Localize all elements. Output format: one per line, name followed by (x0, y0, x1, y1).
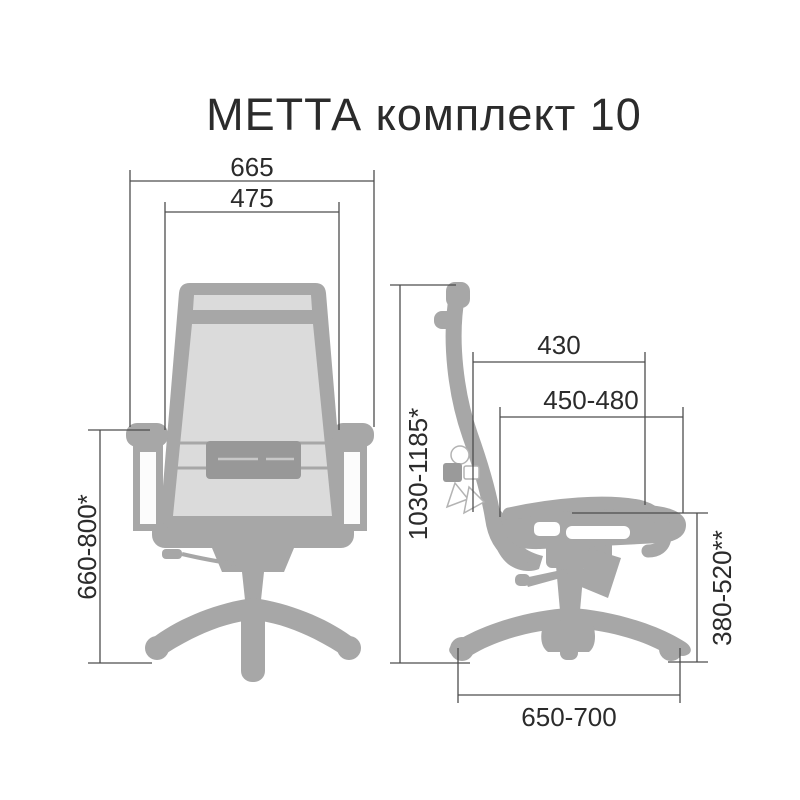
armrest-post-cutout (344, 452, 360, 524)
knob-ring (451, 446, 469, 464)
hanger-hook (434, 311, 462, 329)
page-title: МЕТТА комплект 10 (206, 89, 642, 140)
tilt-mechanism-front (212, 548, 294, 572)
lever-handle (162, 549, 182, 559)
caster-wheel (337, 636, 361, 660)
label-backrest-width: 430 (537, 330, 580, 360)
armrest-pad (332, 423, 374, 447)
label-seat-height: 380-520** (707, 530, 737, 646)
diagram-canvas: МЕТТА комплект 10 (0, 0, 800, 800)
base-leg-center (241, 598, 265, 682)
gas-lift-front (242, 572, 264, 600)
armrest-pad (126, 423, 168, 447)
knob-plate (464, 466, 479, 479)
label-outer-width: 665 (230, 152, 273, 182)
knob-petal (447, 483, 468, 507)
knob-grip (443, 463, 462, 482)
label-base-diameter: 650-700 (521, 702, 616, 732)
right-armrest (332, 423, 374, 531)
left-armrest (126, 423, 168, 531)
label-overall-height: 1030-1185* (403, 408, 433, 541)
lever-handle (515, 574, 530, 586)
five-star-base-front (145, 598, 361, 682)
caster-wheel (145, 636, 169, 660)
label-seat-depth: 450-480 (543, 385, 638, 415)
seat-cutout (566, 526, 630, 539)
armrest-post-cutout (140, 452, 156, 524)
headrest-mesh (193, 295, 312, 310)
caster-wheel (450, 637, 474, 661)
backrest-mesh (173, 324, 332, 516)
front-view-chair (126, 283, 374, 682)
label-armrest-height: 660-800* (72, 494, 102, 600)
product-dimensions-diagram: МЕТТА комплект 10 (0, 0, 800, 800)
backrest-top-cap (446, 282, 470, 308)
label-inner-width: 475 (230, 183, 273, 213)
seat-cutout (534, 522, 560, 536)
